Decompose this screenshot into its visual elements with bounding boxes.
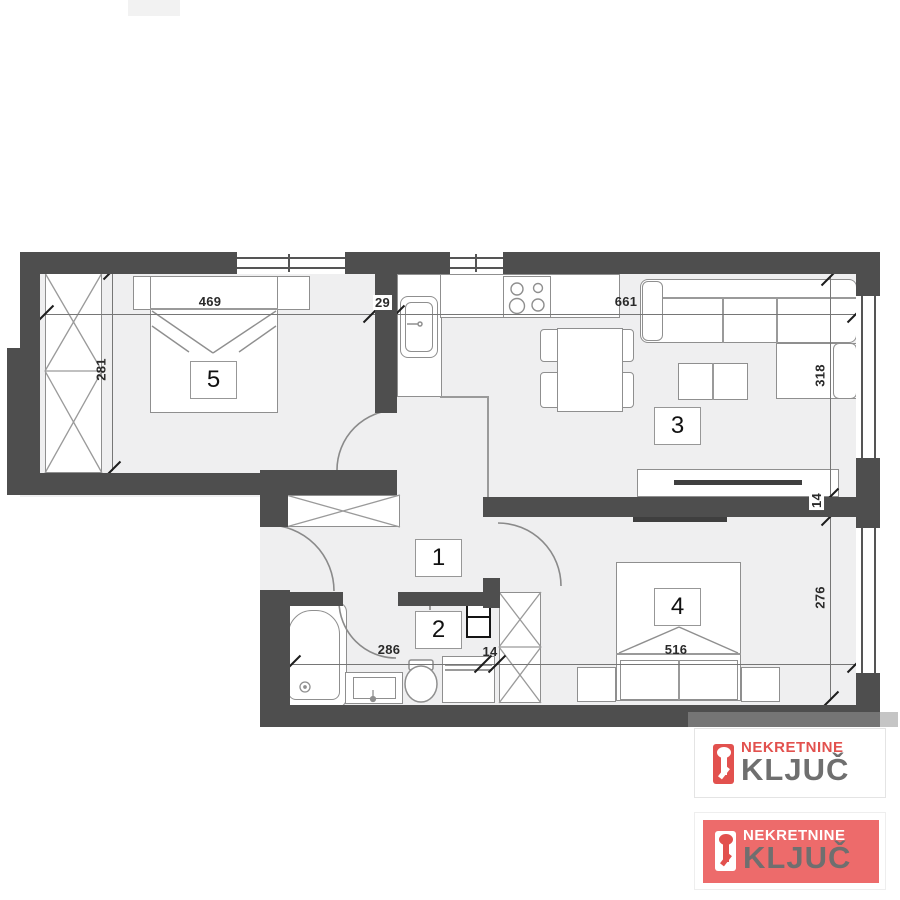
- room-label-living: 3: [654, 407, 701, 445]
- wall-left-stub: [260, 495, 288, 527]
- agency-badge-light-text: NEKRETNINE KLJUČ: [741, 740, 849, 784]
- window-kitchen-mullion: [475, 254, 477, 272]
- room-label-bathroom: 2: [415, 611, 462, 649]
- toilet: [405, 660, 437, 702]
- window-room3-line: [874, 296, 876, 458]
- window-room4-line: [874, 528, 876, 673]
- dim-kitchen-wall: 29: [373, 295, 392, 310]
- window-room5-line: [237, 257, 345, 259]
- agency-badge-red: NEKRETNINE KLJUČ: [694, 812, 886, 890]
- dim-room5-width: 469: [185, 294, 235, 309]
- wall-room3-room4: [483, 497, 858, 517]
- dim-living-height: 318: [813, 351, 828, 401]
- wall-top-room5: [20, 252, 237, 274]
- dim-right-wall: 14: [809, 491, 824, 510]
- watermark-gray-strip: [688, 712, 898, 727]
- key-icon: [715, 831, 736, 871]
- wall-top-living: [503, 252, 880, 274]
- dim-living-width: 661: [602, 294, 650, 309]
- agency-badge-red-panel: NEKRETNINE KLJUČ: [703, 820, 879, 883]
- room-label-bedroom5: 5: [190, 361, 237, 399]
- dim-line-bottom: [292, 664, 857, 665]
- wall-left-lower: [7, 348, 40, 475]
- window-room5-mullion: [288, 254, 290, 272]
- wall-right-mid: [856, 458, 880, 528]
- window-room5: [237, 252, 345, 274]
- dim-room4-height: 276: [813, 573, 828, 623]
- agency-badge-red-text: NEKRETNINE KLJUČ: [743, 828, 851, 872]
- wall-room4-west-stub: [483, 578, 500, 608]
- room-label-bedroom4: 4: [654, 588, 701, 626]
- wall-bath-top-left: [288, 592, 343, 606]
- window-room5-line: [237, 267, 345, 269]
- door-arc-entrance: [268, 525, 334, 591]
- dim-line-top: [45, 314, 857, 315]
- dim-line-room5-height: [112, 271, 113, 471]
- window-room3-line: [861, 296, 863, 458]
- window-room4: [856, 528, 880, 673]
- agency-badge-light: NEKRETNINE KLJUČ: [694, 728, 886, 798]
- floor-plan-canvas: 469 281 29 661 318 14 276 286 14 516 1 2…: [0, 0, 900, 900]
- window-room4-line: [861, 528, 863, 673]
- key-icon: [713, 744, 734, 784]
- room-label-hallway: 1: [415, 539, 462, 577]
- sink-faucet: [407, 322, 422, 326]
- dim-bath-width: 286: [367, 642, 411, 657]
- wall-top-mid: [345, 252, 450, 274]
- dim-room4-width: 516: [653, 642, 699, 657]
- wall-right-top: [856, 252, 880, 296]
- bathtub-drain: [300, 682, 310, 692]
- agency-name-bottom: KLJUČ: [743, 844, 851, 872]
- door-arc-room5: [337, 410, 397, 470]
- window-room3: [856, 296, 880, 458]
- vanity-faucet: [371, 690, 376, 702]
- stove-burners: [510, 283, 545, 314]
- dim-line-right: [830, 277, 831, 701]
- agency-name-bottom: KLJUČ: [741, 756, 849, 784]
- dim-bath-wall: 14: [478, 644, 502, 659]
- door-arc-room4: [498, 523, 561, 586]
- wall-hall-top: [260, 470, 397, 495]
- wall-left-upper: [20, 252, 40, 352]
- dim-room5-height: 281: [94, 345, 109, 395]
- wall-room5-bottom: [7, 473, 267, 495]
